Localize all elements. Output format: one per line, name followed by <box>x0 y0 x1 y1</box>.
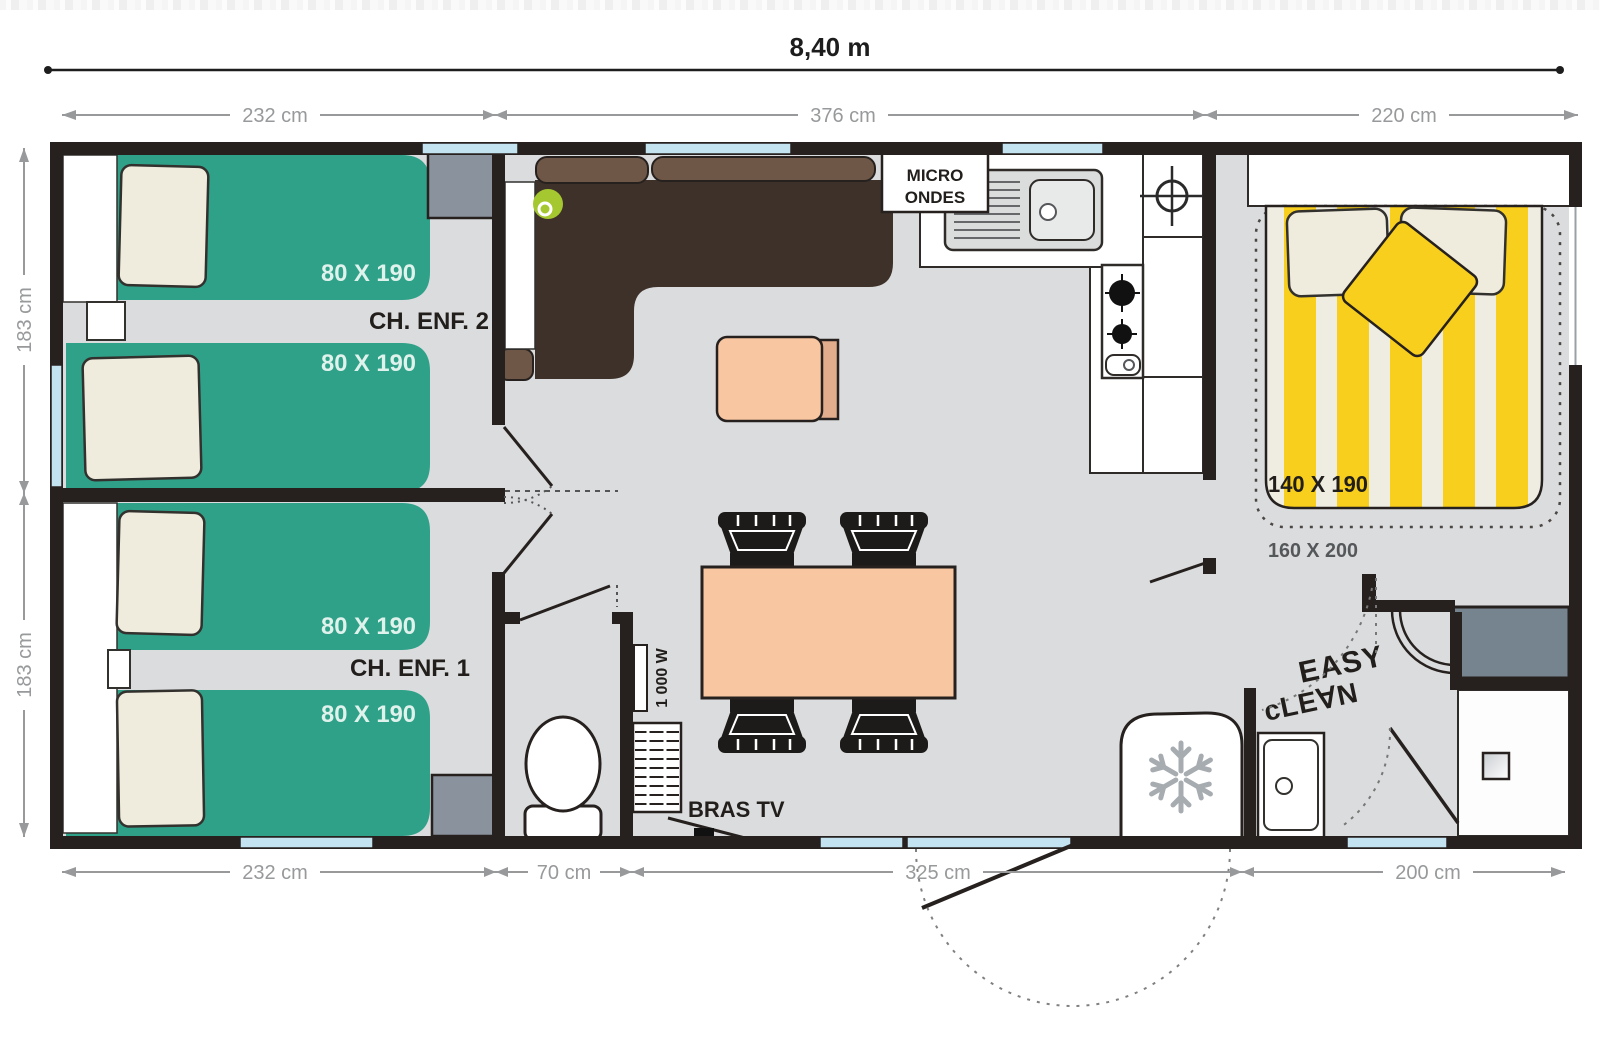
microwave-label: ONDES <box>905 188 965 207</box>
room-label: CH. ENF. 1 <box>350 655 470 682</box>
wardrobe <box>428 152 495 218</box>
pouf <box>717 337 822 421</box>
window <box>51 365 62 487</box>
pillow <box>116 511 204 635</box>
coffee-table <box>717 337 838 421</box>
floor-plan: 80 X 190 80 X 190 CH. ENF. 2 80 X 190 80… <box>0 0 1600 1040</box>
bed-size-label: 80 X 190 <box>321 260 416 287</box>
chair <box>718 698 806 753</box>
chair <box>840 698 928 753</box>
window <box>422 143 518 154</box>
window <box>1002 143 1103 154</box>
dim-label: 200 cm <box>1395 862 1461 884</box>
room-label: CH. ENF. 2 <box>369 308 489 335</box>
dim-label: 232 cm <box>242 862 308 884</box>
headboard-shelf <box>63 155 117 302</box>
dim-label: 183 cm <box>14 632 36 698</box>
stove <box>1102 265 1143 378</box>
wardrobe <box>432 775 495 836</box>
sink-drain-icon <box>1040 204 1056 220</box>
window-bay-door <box>907 837 1071 848</box>
pillow <box>118 165 208 287</box>
master-footprint-size: 160 X 200 <box>1268 540 1358 562</box>
window <box>645 143 791 154</box>
overall-dimension: 8,40 m <box>44 32 1564 74</box>
dim-label: 325 cm <box>905 862 971 884</box>
microwave-box: MICRO ONDES <box>882 153 988 212</box>
bed-size-label: 80 X 190 <box>321 613 416 640</box>
toilet-bowl <box>526 717 600 811</box>
master-bedroom: 140 X 190 160 X 200 <box>1248 153 1575 562</box>
pillow <box>82 356 201 481</box>
floor-plan-page: 80 X 190 80 X 190 CH. ENF. 2 80 X 190 80… <box>0 0 1600 1040</box>
shower-room <box>1458 690 1569 836</box>
shower-drain <box>1483 753 1509 779</box>
towel-ladder <box>633 723 681 812</box>
microwave-label: MICRO <box>907 166 964 185</box>
dim-label: 183 cm <box>14 287 36 353</box>
window <box>820 837 903 848</box>
sofa-side-shelf <box>505 182 535 349</box>
fridge <box>1121 713 1242 840</box>
dim-label: 232 cm <box>242 105 308 127</box>
window <box>240 837 373 848</box>
dim-label: 376 cm <box>810 105 876 127</box>
dim-label: 220 cm <box>1371 105 1437 127</box>
nightstand <box>108 650 130 688</box>
nightstand <box>87 302 125 340</box>
dim-label: 70 cm <box>537 862 591 884</box>
chair <box>718 512 806 567</box>
headboard <box>1248 153 1575 206</box>
pillow <box>117 690 204 826</box>
window <box>1347 837 1447 848</box>
tv-arm-label: BRAS TV <box>688 797 785 822</box>
washbasin <box>1258 733 1324 838</box>
bed-size-label: 80 X 190 <box>321 701 416 728</box>
dining-table <box>702 567 955 698</box>
water-heater <box>634 645 647 711</box>
left-dimensions: 183 cm 183 cm <box>14 148 36 837</box>
chair <box>840 512 928 567</box>
bed-size-label: 80 X 190 <box>321 350 416 377</box>
water-heater-label: 1 000 W <box>654 647 671 707</box>
overall-dim-label: 8,40 m <box>790 32 871 62</box>
top-dimensions: 232 cm 376 cm 220 cm <box>62 105 1578 127</box>
master-bed-size: 140 X 190 <box>1268 471 1368 497</box>
top-crop-artifact <box>0 0 1600 10</box>
bottom-dimensions: 232 cm 70 cm 325 cm 200 cm <box>62 862 1565 884</box>
bathroom-wardrobe <box>1453 607 1569 678</box>
